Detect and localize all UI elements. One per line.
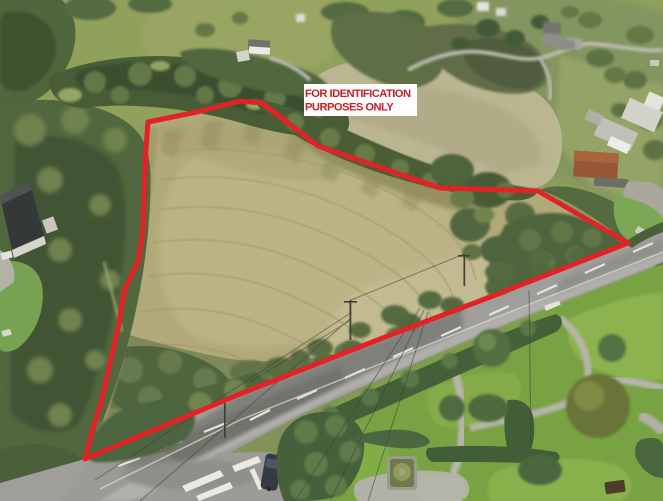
svg-text:FOR IDENTIFICATION: FOR IDENTIFICATION [305, 88, 411, 100]
svg-text:PURPOSES ONLY: PURPOSES ONLY [305, 101, 394, 113]
